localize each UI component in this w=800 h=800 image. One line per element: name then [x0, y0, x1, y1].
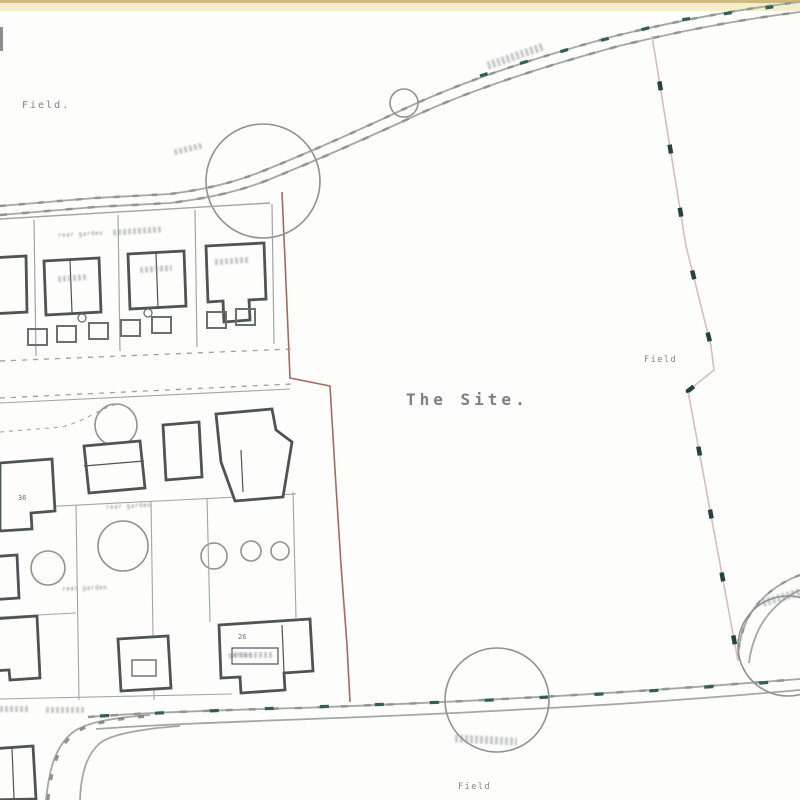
site-boundary-right-line [652, 36, 738, 661]
plot-line [207, 498, 210, 622]
garage-outline [152, 317, 171, 333]
small-circle [78, 314, 86, 322]
house-outline [44, 258, 101, 315]
garage-outline [89, 323, 108, 339]
bottom-road-lower-edge [96, 690, 800, 729]
tree-circle [98, 521, 148, 571]
lower-houses [0, 409, 313, 800]
plot-line [293, 492, 296, 618]
plot-number-26: 26 [238, 633, 246, 641]
site-plan-scan: Field. The Site. Field Field 36 26 rear … [0, 0, 800, 800]
driveway-curve [0, 404, 118, 432]
garage-outline [28, 329, 47, 345]
branch-road [738, 575, 800, 663]
site-boundary-right-dashes [652, 36, 738, 661]
scan-artifact [0, 27, 3, 51]
top-road-hedge-marks [0, 12, 800, 215]
tree-circle [201, 543, 227, 569]
site-label: The Site. [406, 390, 529, 409]
tree-circle [31, 551, 65, 585]
tree-circle [271, 542, 289, 560]
tree-circle [95, 404, 137, 446]
small-circle [144, 309, 152, 317]
left-road-edge [46, 715, 150, 800]
plot-line [76, 505, 79, 700]
garage-outline [57, 326, 76, 342]
plot-line [195, 210, 197, 347]
left-road-edge [80, 726, 180, 800]
house-outline [0, 256, 27, 314]
plot-number-36: 36 [18, 494, 26, 502]
plot-line [0, 694, 232, 699]
road-name-illegible-text [0, 706, 30, 712]
tree-circle [241, 541, 261, 561]
house-label-illegible-text [234, 652, 274, 658]
site-plan-drawing [0, 0, 800, 800]
plot-line [272, 204, 274, 344]
road-name-illegible-text [46, 707, 84, 713]
site-boundary-right [652, 36, 738, 661]
house-outline [0, 555, 19, 600]
house-outline [0, 616, 40, 680]
house-outline [163, 422, 202, 480]
house-outline [0, 746, 36, 800]
house-outline [118, 636, 171, 691]
house-outline [0, 459, 55, 531]
house-outline [216, 409, 292, 501]
field-label-bottom: Field [458, 782, 491, 792]
bottom-road [88, 679, 800, 729]
garage-outline [121, 320, 140, 336]
top-road-teal-hedge [480, 3, 800, 76]
top-road-lower-edge [0, 12, 800, 215]
field-label-top-left: Field. [22, 100, 70, 111]
plot-line [118, 215, 120, 351]
field-label-right: Field [644, 355, 677, 365]
top-road [0, 2, 800, 215]
tree-circle [390, 89, 418, 117]
estate-road-dashed-edge [0, 349, 292, 361]
house-outline [84, 441, 145, 493]
plot-line [34, 220, 36, 356]
upper-houses [0, 243, 266, 322]
